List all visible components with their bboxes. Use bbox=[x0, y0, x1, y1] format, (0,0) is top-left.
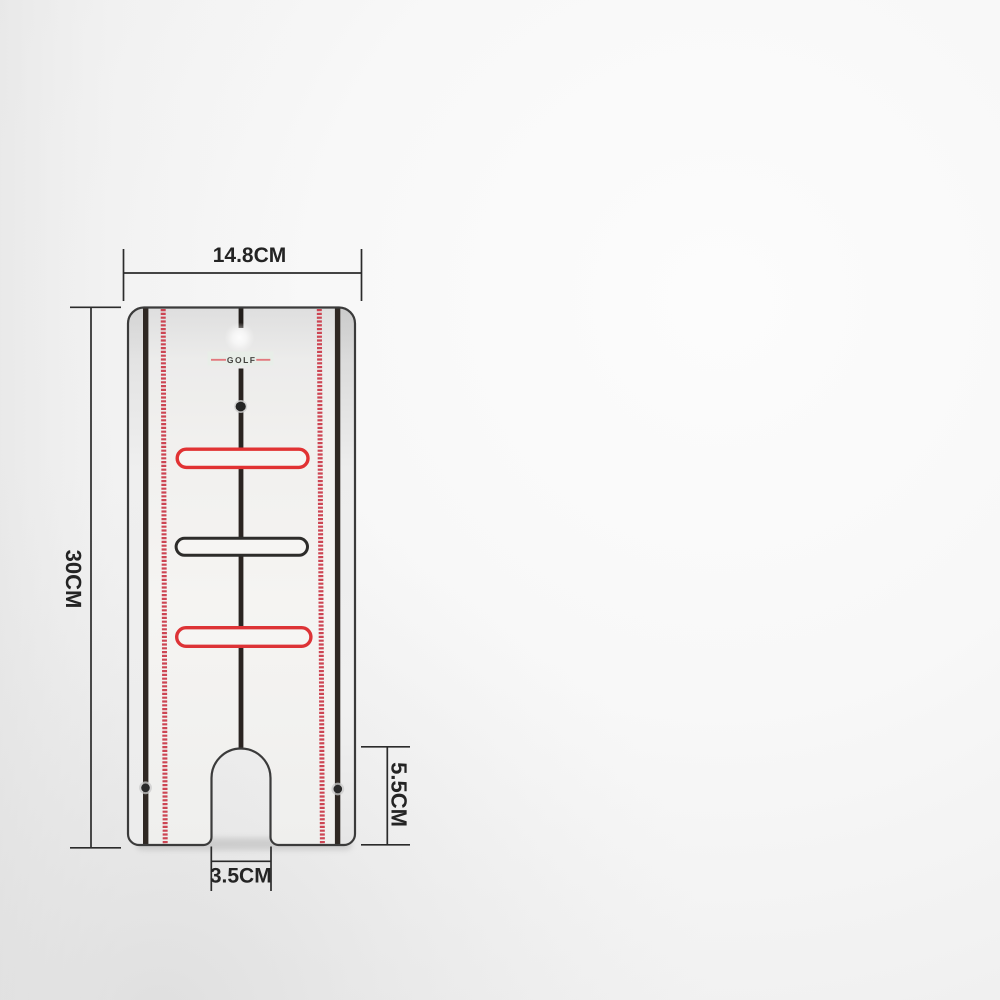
svg-text:GOLF: GOLF bbox=[227, 355, 257, 365]
svg-text:3.5CM: 3.5CM bbox=[210, 865, 272, 888]
svg-text:14.8CM: 14.8CM bbox=[213, 244, 287, 267]
svg-text:30CM: 30CM bbox=[61, 550, 86, 609]
svg-text:5.5CM: 5.5CM bbox=[387, 762, 412, 827]
